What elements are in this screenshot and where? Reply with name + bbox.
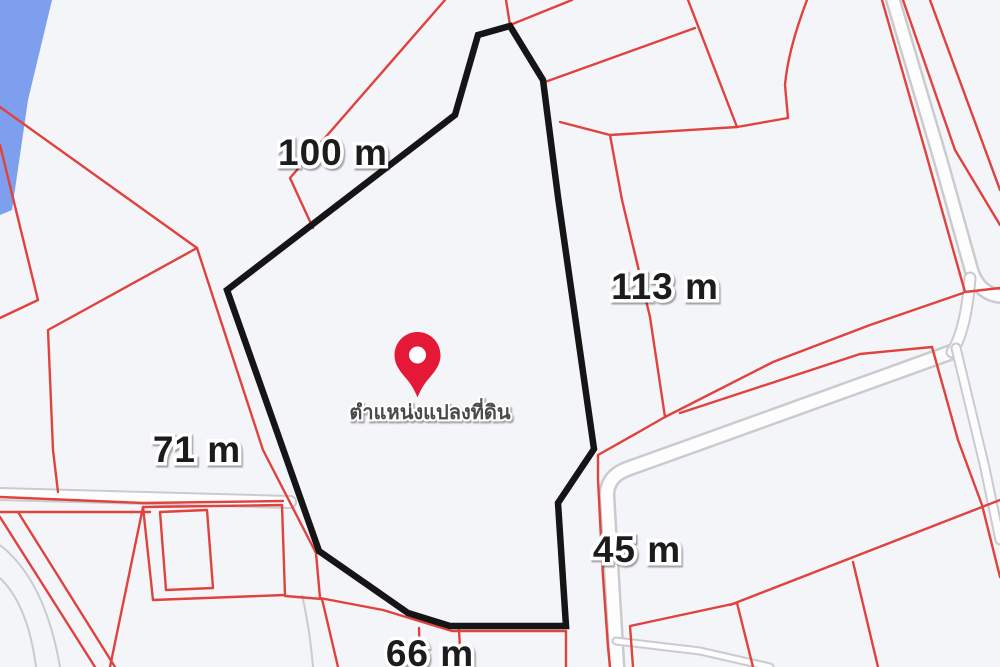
measurement-label-south-east: 45 m [593, 529, 681, 570]
pin-label: ตำแหน่งแปลงที่ดิน [349, 397, 511, 424]
labels-layer: 100 m 113 m 71 m 45 m 66 m ตำแหน่งแปลงที… [153, 132, 719, 667]
parcel-lines-layer [0, 0, 1000, 667]
location-pin-icon [395, 332, 441, 398]
measurement-label-north: 100 m [278, 132, 388, 173]
map-container[interactable]: 100 m 113 m 71 m 45 m 66 m ตำแหน่งแปลงที… [0, 0, 1000, 667]
measurement-label-west: 71 m [153, 429, 241, 470]
water-area [0, 0, 52, 215]
measurement-label-south: 66 m [386, 633, 474, 667]
cadastral-map: 100 m 113 m 71 m 45 m 66 m ตำแหน่งแปลงที… [0, 0, 1000, 667]
measurement-label-east: 113 m [611, 266, 719, 307]
